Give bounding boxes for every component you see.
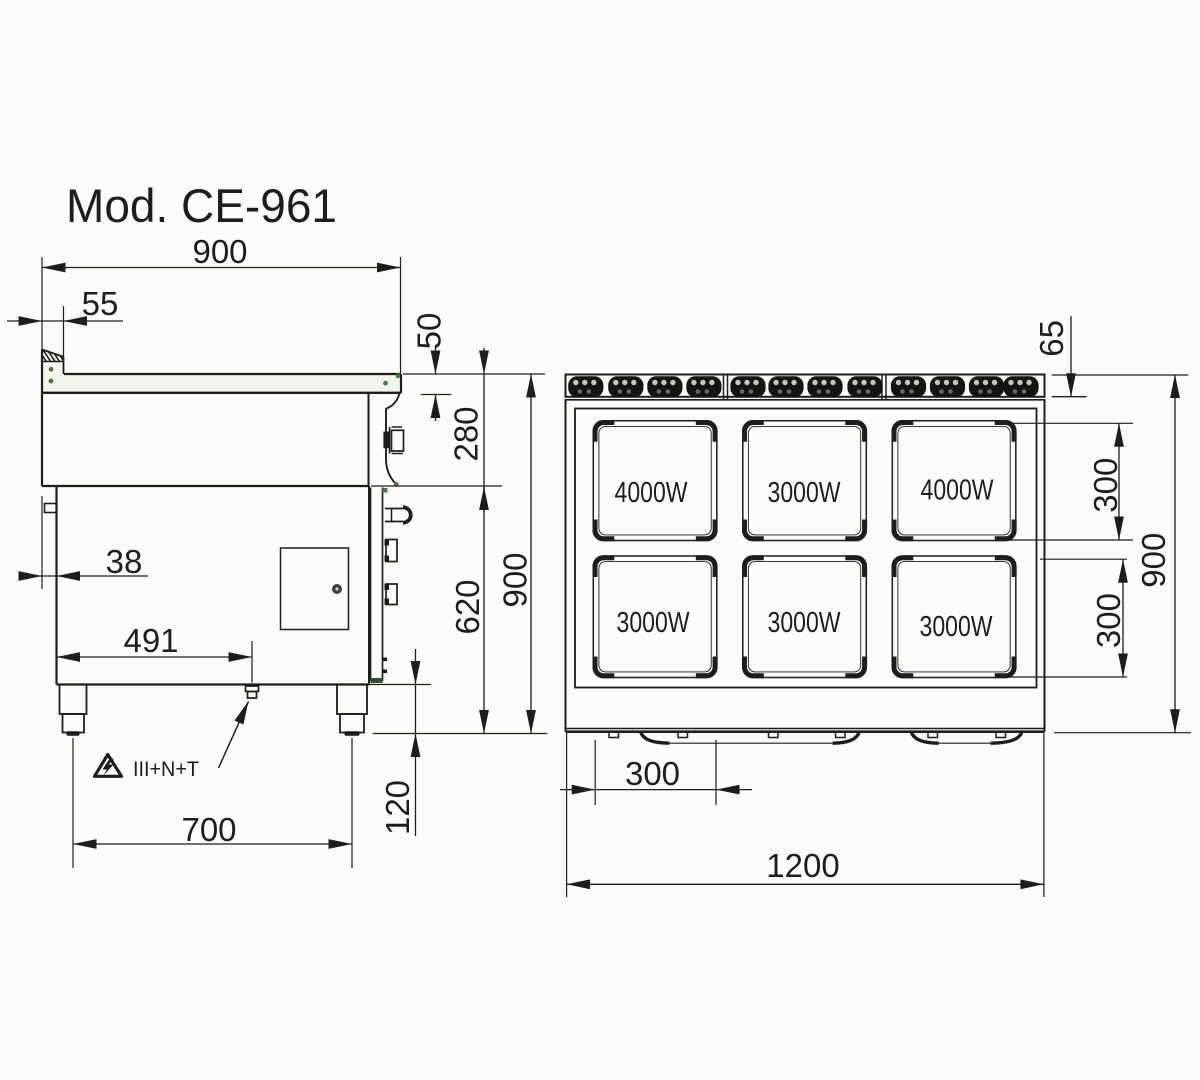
- svg-text:491: 491: [123, 622, 178, 659]
- svg-text:900: 900: [497, 552, 534, 607]
- svg-text:65: 65: [1033, 320, 1070, 357]
- svg-text:55: 55: [82, 285, 119, 322]
- svg-text:3000W: 3000W: [768, 477, 841, 509]
- svg-text:300: 300: [1090, 593, 1127, 648]
- svg-text:III+N+T: III+N+T: [133, 758, 199, 781]
- svg-text:900: 900: [192, 233, 247, 270]
- svg-text:300: 300: [1087, 458, 1124, 513]
- svg-text:300: 300: [625, 755, 680, 792]
- svg-text:4000W: 4000W: [921, 475, 994, 507]
- svg-text:4000W: 4000W: [615, 477, 688, 509]
- svg-text:700: 700: [181, 811, 236, 848]
- svg-text:3000W: 3000W: [617, 607, 690, 639]
- svg-text:Mod. CE-961: Mod. CE-961: [66, 179, 337, 232]
- svg-text:900: 900: [1135, 533, 1172, 588]
- svg-text:50: 50: [411, 313, 448, 350]
- svg-text:3000W: 3000W: [768, 607, 841, 639]
- svg-text:38: 38: [106, 543, 143, 580]
- svg-text:620: 620: [449, 579, 486, 634]
- svg-text:3000W: 3000W: [920, 611, 993, 643]
- svg-text:120: 120: [379, 780, 416, 835]
- svg-text:1200: 1200: [766, 847, 839, 884]
- svg-text:280: 280: [448, 406, 485, 461]
